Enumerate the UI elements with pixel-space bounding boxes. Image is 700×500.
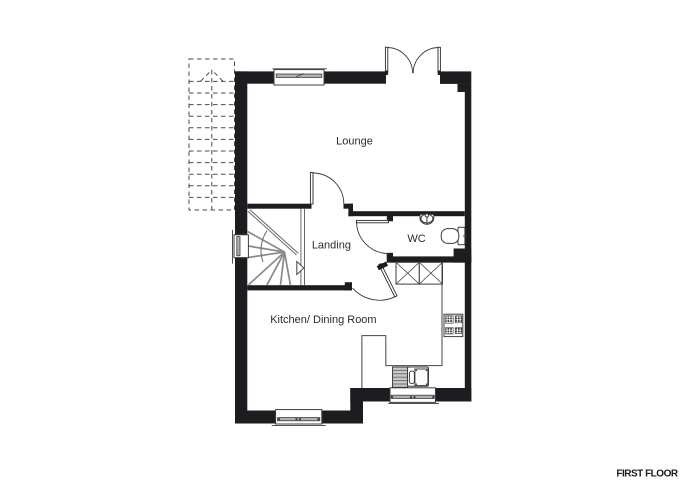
svg-text:WC: WC [407,233,425,245]
svg-text:Kitchen/ Dining Room: Kitchen/ Dining Room [270,314,376,326]
svg-text:FIRST FLOOR: FIRST FLOOR [616,468,678,479]
svg-text:Landing: Landing [312,239,351,251]
svg-text:Lounge: Lounge [336,135,373,147]
